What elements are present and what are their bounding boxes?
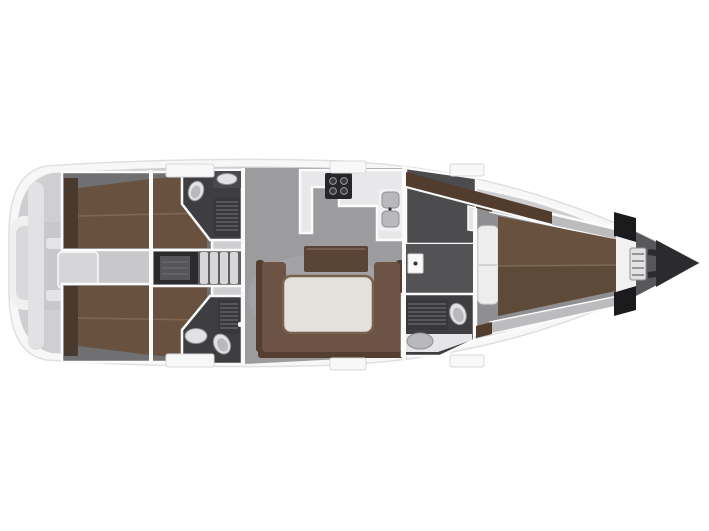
locker-door-knob-icon <box>414 262 418 266</box>
deck-hatch <box>166 164 214 177</box>
saloon-aft-bulkhead <box>241 168 245 364</box>
cockpit-table <box>58 252 98 288</box>
forward-cabin-partition <box>473 210 477 298</box>
yacht-layout-figure <box>0 0 709 531</box>
bow-ladder-icon <box>630 248 646 280</box>
engine-companionway <box>152 250 244 286</box>
deck-hatch <box>330 161 366 173</box>
deck-hatch <box>450 164 484 176</box>
aft-bulkhead <box>149 170 153 362</box>
starboard-aft-bed-headboard <box>64 286 78 356</box>
starboard-head-shower-tray <box>218 300 240 334</box>
saloon <box>244 168 408 364</box>
deck-hatch <box>330 358 366 370</box>
stove-icon <box>325 173 352 199</box>
deck-hatch <box>166 354 214 367</box>
saloon-sideboard <box>304 246 368 272</box>
deck-plan-canvas <box>0 0 709 531</box>
stern-seat <box>28 182 44 350</box>
galley-faucet-icon <box>388 207 391 210</box>
deck-hatch <box>450 355 484 367</box>
starboard-head-shower-grate-icon <box>220 304 238 328</box>
saloon-forward-bulkhead <box>402 166 406 362</box>
forward-bed-seam <box>498 265 620 266</box>
settee-right-arm <box>374 262 400 352</box>
starboard-head-sink-icon <box>185 329 207 344</box>
engine-icon <box>160 256 190 280</box>
saloon-table <box>283 276 373 333</box>
port-aft-bed-headboard <box>64 178 78 248</box>
galley-sink2-icon <box>382 211 399 227</box>
port-head-sink-icon <box>217 174 237 185</box>
forward-head-sink-icon <box>407 333 433 349</box>
galley-sink-icon <box>382 192 399 208</box>
